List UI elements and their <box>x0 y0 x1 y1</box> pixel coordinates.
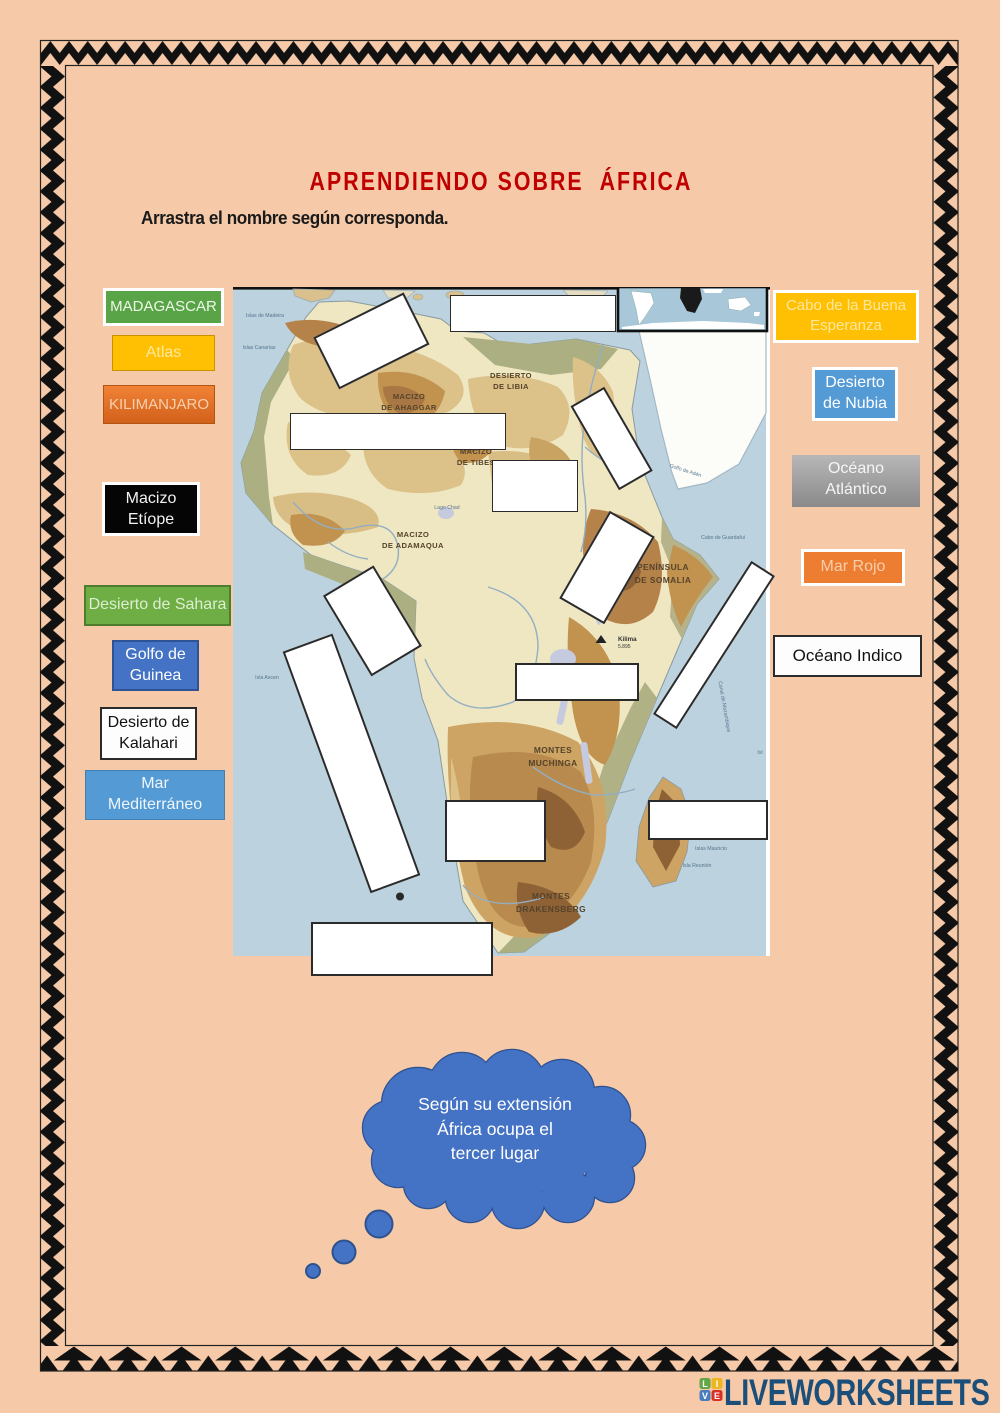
svg-text:MONTES: MONTES <box>532 891 570 901</box>
svg-text:Islas de Madeira: Islas de Madeira <box>246 313 284 319</box>
svg-text:África ocupa el: África ocupa el <box>437 1119 553 1139</box>
svg-text:DE AHAGGAR: DE AHAGGAR <box>381 403 437 412</box>
svg-text:L: L <box>702 1379 708 1389</box>
svg-text:tercer lugar: tercer lugar <box>451 1143 540 1163</box>
svg-text:MACIZO: MACIZO <box>393 392 425 401</box>
svg-text:I: I <box>716 1379 719 1389</box>
svg-text:DRAKENSBERG: DRAKENSBERG <box>516 904 586 914</box>
svg-text:E: E <box>714 1391 720 1401</box>
svg-text:Isl: Isl <box>757 750 762 756</box>
svg-text:MACIZO: MACIZO <box>397 530 429 539</box>
svg-text:Cabo de Guardafui: Cabo de Guardafui <box>701 535 745 541</box>
svg-text:MONTES: MONTES <box>534 745 572 755</box>
svg-text:V: V <box>702 1391 708 1401</box>
svg-text:Según su extensión: Según su extensión <box>418 1094 572 1114</box>
svg-text:PENÍNSULA: PENÍNSULA <box>637 561 689 572</box>
svg-text:MUCHINGA: MUCHINGA <box>528 758 577 768</box>
svg-text:Islas Canarias: Islas Canarias <box>243 345 276 351</box>
svg-text:DE ADAMAQUA: DE ADAMAQUA <box>382 541 444 550</box>
svg-text:DE LIBIA: DE LIBIA <box>493 382 529 391</box>
svg-text:Islas Mauricio: Islas Mauricio <box>695 846 727 852</box>
svg-text:Lago Chad: Lago Chad <box>434 505 459 511</box>
svg-text:Isla Reunión: Isla Reunión <box>683 863 712 869</box>
svg-text:5.895: 5.895 <box>618 644 631 650</box>
svg-text:Isla Ascen: Isla Ascen <box>255 675 279 681</box>
svg-text:DESIERTO: DESIERTO <box>490 371 532 380</box>
svg-text:DE TIBES: DE TIBES <box>457 458 495 467</box>
svg-text:Kilima: Kilima <box>618 636 637 643</box>
svg-text:DE SOMALIA: DE SOMALIA <box>635 575 692 585</box>
